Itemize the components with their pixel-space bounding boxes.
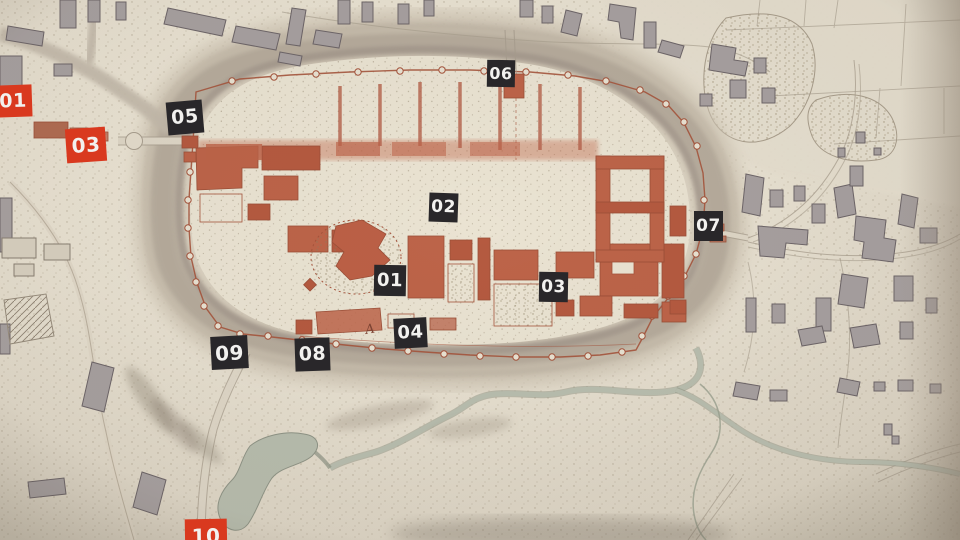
map-marker-red-10[interactable]: 10	[185, 519, 228, 540]
map-marker-red-01[interactable]: 01	[0, 84, 33, 117]
photo-vignette	[0, 0, 960, 540]
map-marker-black-04[interactable]: 04	[393, 317, 428, 349]
historic-fortress-map: A 01 03 05 06 02 07 01 03 04 08 09 10	[0, 0, 960, 540]
map-marker-black-05[interactable]: 05	[166, 99, 205, 135]
map-marker-black-09[interactable]: 09	[210, 335, 249, 370]
map-marker-black-06[interactable]: 06	[487, 60, 515, 87]
map-marker-black-01[interactable]: 01	[374, 265, 407, 297]
map-drawing: A	[0, 0, 960, 540]
map-marker-red-03[interactable]: 03	[65, 127, 107, 164]
map-marker-black-02[interactable]: 02	[429, 193, 459, 223]
map-marker-black-08[interactable]: 08	[294, 337, 330, 371]
map-marker-black-03[interactable]: 03	[539, 272, 569, 303]
map-marker-black-07[interactable]: 07	[694, 211, 723, 241]
